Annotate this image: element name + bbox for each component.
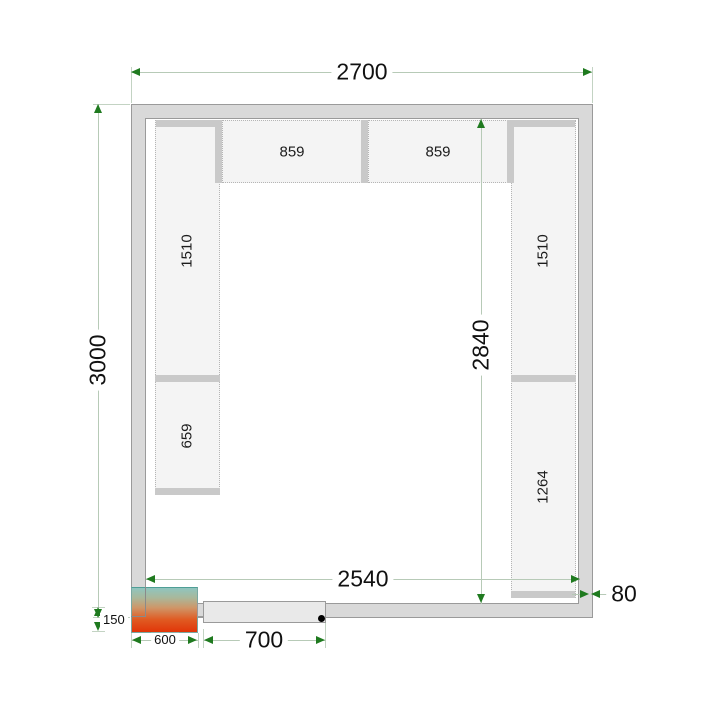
shelf-label-right-upper: 1510: [535, 234, 552, 267]
door-hinge-dot: [318, 615, 325, 622]
dim-label-unit-protrusion: 150: [100, 613, 128, 627]
shelf-right-column: [511, 120, 576, 598]
dim-label-outer-width: 2700: [331, 59, 392, 84]
dim-label-inner-depth: 2840: [468, 314, 493, 375]
dim-label-inner-width: 2540: [332, 566, 393, 591]
dim-arrow-up-icon: [477, 119, 485, 128]
dim-label-wall-thickness: 80: [606, 581, 642, 606]
shelf-label-left-upper: 1510: [179, 234, 196, 267]
dim-arrow-right-icon: [583, 68, 592, 76]
shelf-label-right-lower: 1264: [535, 470, 552, 503]
cooling-unit: [131, 587, 198, 633]
wall-edge-line: [145, 587, 146, 617]
shelf-support-bar: [507, 120, 514, 183]
dim-arrow-left-icon: [131, 68, 140, 76]
dim-label-outer-depth: 3000: [85, 329, 110, 390]
shelf-support-bar: [511, 591, 575, 598]
dim-arrow-left-icon: [591, 590, 600, 598]
shelf-support-bar: [215, 120, 222, 183]
dim-arrow-right-icon: [580, 590, 589, 598]
dim-arrow-right-icon: [316, 636, 325, 644]
shelf-support-bar: [155, 375, 220, 382]
shelf-support-bar: [156, 120, 218, 127]
shelf-support-bar: [361, 120, 368, 183]
shelf-support-bar: [512, 120, 575, 127]
dim-arrow-down-icon: [477, 594, 485, 603]
dim-label-door-width: 700: [240, 627, 288, 652]
extension-line: [592, 67, 593, 103]
shelf-label-top-left: 859: [279, 144, 304, 161]
extension-line: [198, 633, 199, 648]
extension-tick: [92, 631, 105, 632]
dim-arrow-right-icon: [188, 636, 197, 644]
dim-arrow-left-icon: [132, 636, 141, 644]
shelf-label-left-lower: 659: [179, 423, 196, 448]
dim-label-unit-width: 600: [151, 633, 179, 647]
door-panel: [203, 601, 326, 623]
dim-arrow-left-icon: [204, 636, 213, 644]
dim-arrow-left-icon: [146, 575, 155, 583]
shelf-support-bar: [511, 375, 576, 382]
floor-plan: 859 859 1510 659 1510 1264 2700 3000 284: [0, 0, 720, 720]
shelf-support-bar: [155, 488, 220, 495]
wall-edge-line: [131, 616, 146, 617]
shelf-label-top-right: 859: [425, 144, 450, 161]
extension-line: [325, 623, 326, 648]
dim-arrow-up-icon: [94, 104, 102, 113]
dim-arrow-right-icon: [571, 575, 580, 583]
